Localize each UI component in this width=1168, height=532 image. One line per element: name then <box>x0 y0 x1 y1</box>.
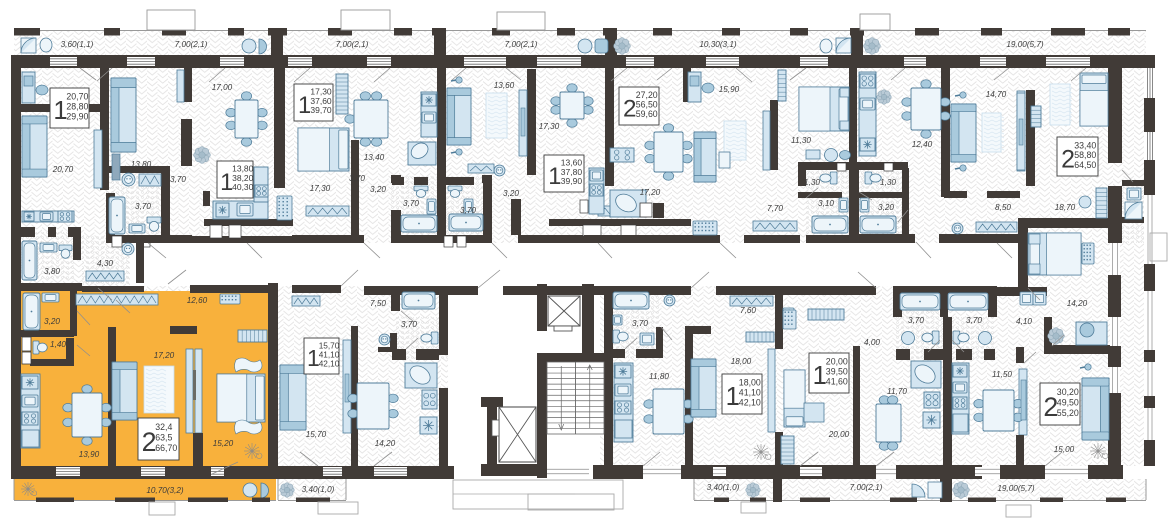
svg-text:7,00(2,1): 7,00(2,1) <box>505 40 538 49</box>
svg-text:13,80: 13,80 <box>131 160 152 169</box>
svg-text:1: 1 <box>813 362 827 390</box>
svg-text:29,90: 29,90 <box>66 112 88 122</box>
svg-text:27,20: 27,20 <box>636 90 658 100</box>
svg-text:28,80: 28,80 <box>66 102 88 112</box>
svg-text:11,80: 11,80 <box>649 372 669 381</box>
svg-text:3,70: 3,70 <box>403 199 419 208</box>
svg-text:7,70: 7,70 <box>767 204 783 213</box>
svg-text:7,00(2,1): 7,00(2,1) <box>175 40 208 49</box>
svg-text:20,70: 20,70 <box>66 92 88 102</box>
svg-text:49,50: 49,50 <box>1057 398 1079 408</box>
svg-text:30,20: 30,20 <box>1057 387 1079 397</box>
svg-text:1,30: 1,30 <box>804 178 820 187</box>
svg-text:14,20: 14,20 <box>375 439 396 448</box>
svg-text:20,00: 20,00 <box>828 430 850 439</box>
svg-text:3,40(1,0): 3,40(1,0) <box>707 483 740 492</box>
svg-text:15,20: 15,20 <box>213 439 234 448</box>
svg-text:12,60: 12,60 <box>187 296 208 305</box>
svg-text:3,70: 3,70 <box>349 174 365 183</box>
svg-text:3,70: 3,70 <box>908 316 924 325</box>
svg-text:3,10: 3,10 <box>818 199 834 208</box>
svg-text:15,70: 15,70 <box>306 430 327 439</box>
svg-text:58,80: 58,80 <box>1074 150 1096 160</box>
svg-text:14,70: 14,70 <box>986 90 1007 99</box>
svg-text:7,60: 7,60 <box>740 306 756 315</box>
svg-text:17,30: 17,30 <box>310 184 331 193</box>
svg-text:7,50: 7,50 <box>370 299 386 308</box>
svg-text:12,40: 12,40 <box>912 140 933 149</box>
svg-text:14,20: 14,20 <box>1067 299 1088 308</box>
svg-text:1,40: 1,40 <box>50 340 66 349</box>
svg-text:39,70: 39,70 <box>310 105 332 115</box>
svg-text:32,4: 32,4 <box>155 422 172 432</box>
svg-text:39,50: 39,50 <box>826 367 848 377</box>
svg-text:7,00(2,1): 7,00(2,1) <box>336 40 369 49</box>
svg-text:17,00: 17,00 <box>212 83 233 92</box>
svg-text:55,20: 55,20 <box>1057 408 1079 418</box>
svg-text:18,00: 18,00 <box>731 357 752 366</box>
svg-text:59,60: 59,60 <box>636 109 658 119</box>
svg-text:41,10: 41,10 <box>319 350 340 359</box>
svg-text:3,70: 3,70 <box>401 320 417 329</box>
svg-text:1: 1 <box>298 93 311 119</box>
svg-text:11,70: 11,70 <box>887 387 907 396</box>
svg-text:3,20: 3,20 <box>44 317 60 326</box>
svg-text:3,60(1,1): 3,60(1,1) <box>61 40 94 49</box>
svg-text:18,00: 18,00 <box>739 378 761 388</box>
svg-text:19,00(5,7): 19,00(5,7) <box>997 484 1035 493</box>
svg-text:3,70: 3,70 <box>966 316 982 325</box>
svg-text:66,70: 66,70 <box>155 443 177 453</box>
svg-text:15,70: 15,70 <box>319 341 340 350</box>
svg-text:15,90: 15,90 <box>719 85 740 94</box>
svg-text:11,30: 11,30 <box>791 136 811 145</box>
svg-text:56,50: 56,50 <box>636 100 658 110</box>
svg-text:42,10: 42,10 <box>319 359 340 368</box>
svg-text:64,50: 64,50 <box>1074 160 1096 170</box>
svg-text:2: 2 <box>623 96 637 123</box>
svg-text:4,00: 4,00 <box>864 338 880 347</box>
svg-text:17,20: 17,20 <box>640 188 661 197</box>
svg-text:13,40: 13,40 <box>364 153 385 162</box>
svg-text:1: 1 <box>548 164 561 190</box>
svg-text:3,70: 3,70 <box>632 319 648 328</box>
svg-text:1,30: 1,30 <box>880 178 896 187</box>
svg-text:41,10: 41,10 <box>739 388 761 398</box>
svg-text:13,90: 13,90 <box>79 450 100 459</box>
svg-text:2: 2 <box>1061 145 1075 173</box>
svg-text:20,00: 20,00 <box>826 357 848 367</box>
svg-text:8,50: 8,50 <box>995 203 1011 212</box>
svg-text:39,90: 39,90 <box>561 176 583 186</box>
svg-text:1: 1 <box>726 383 740 411</box>
svg-text:4,10: 4,10 <box>1016 317 1032 326</box>
svg-text:40,30: 40,30 <box>232 182 254 192</box>
svg-text:3,20: 3,20 <box>878 203 894 212</box>
svg-text:7,00(2,1): 7,00(2,1) <box>850 483 883 492</box>
svg-text:3,70: 3,70 <box>460 206 476 215</box>
svg-text:18,70: 18,70 <box>1055 203 1076 212</box>
svg-text:13,60: 13,60 <box>494 81 515 90</box>
svg-text:63,5: 63,5 <box>155 433 172 443</box>
svg-text:3,80: 3,80 <box>44 267 60 276</box>
svg-text:3,20: 3,20 <box>370 185 386 194</box>
svg-text:10,30(3,1): 10,30(3,1) <box>699 40 737 49</box>
svg-text:11,50: 11,50 <box>992 370 1012 379</box>
svg-text:41,60: 41,60 <box>826 377 848 387</box>
svg-text:42,10: 42,10 <box>739 398 761 408</box>
svg-text:10,70(3,2): 10,70(3,2) <box>146 486 184 495</box>
svg-text:33,40: 33,40 <box>1074 140 1096 150</box>
svg-text:15,00: 15,00 <box>1054 445 1075 454</box>
svg-text:3,70: 3,70 <box>135 202 151 211</box>
svg-text:3,70: 3,70 <box>170 175 186 184</box>
svg-text:17,30: 17,30 <box>539 122 560 131</box>
svg-text:19,00(5,7): 19,00(5,7) <box>1006 40 1044 49</box>
svg-text:20,70: 20,70 <box>52 165 74 174</box>
svg-text:3,40(1,0): 3,40(1,0) <box>302 485 335 494</box>
svg-text:17,20: 17,20 <box>154 351 175 360</box>
svg-text:3,20: 3,20 <box>503 189 519 198</box>
svg-text:4,30: 4,30 <box>97 259 113 268</box>
